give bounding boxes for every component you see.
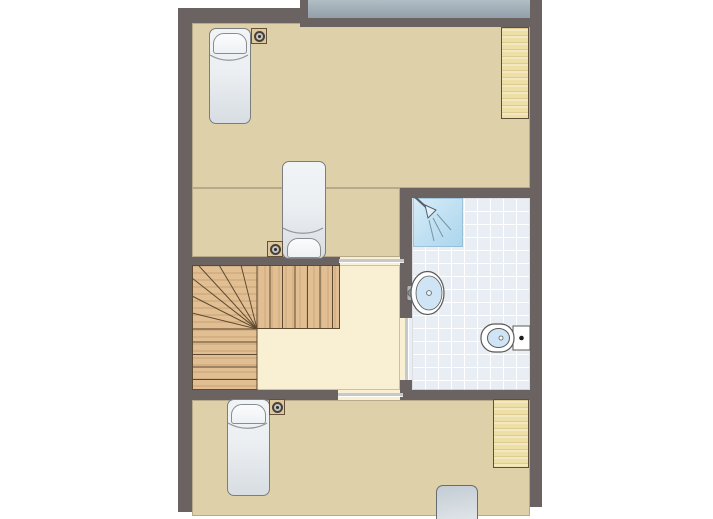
door-stair-hall-top	[339, 259, 404, 262]
wall-bathroom-left-upper	[400, 188, 412, 318]
lamp-dot	[258, 35, 261, 38]
nightstand-3	[269, 399, 285, 415]
wall-right	[530, 0, 542, 507]
lamp-icon	[272, 402, 283, 413]
floor-plan	[0, 0, 713, 519]
bed-1	[209, 28, 251, 124]
lamp-dot	[276, 406, 279, 409]
stairs-lower-run	[192, 329, 257, 390]
wall-bathroom-left-lower	[400, 380, 412, 400]
bed-2-pillow	[287, 238, 321, 258]
door-stair-hall-bottom	[338, 393, 403, 396]
bed-1-pillow	[213, 33, 247, 54]
lamp-dot	[274, 248, 277, 251]
shower	[413, 198, 463, 247]
stairs-winder	[192, 265, 257, 329]
bed-2	[282, 161, 326, 259]
door-bathroom	[405, 318, 408, 380]
bed-3-pillow	[231, 404, 266, 424]
bed-3	[227, 399, 270, 496]
wall-bathroom-top	[400, 188, 530, 198]
stairs-upper-run	[257, 265, 340, 329]
wall-top-right	[300, 18, 533, 27]
bed-4-partial	[436, 485, 478, 519]
roof-section	[308, 0, 533, 18]
wall-top-left	[178, 8, 308, 23]
nightstand-2	[267, 241, 283, 257]
lamp-icon	[254, 31, 265, 42]
nightstand-1	[251, 28, 267, 44]
desk-1	[501, 27, 529, 119]
lamp-icon	[270, 244, 281, 255]
desk-2	[493, 399, 529, 468]
